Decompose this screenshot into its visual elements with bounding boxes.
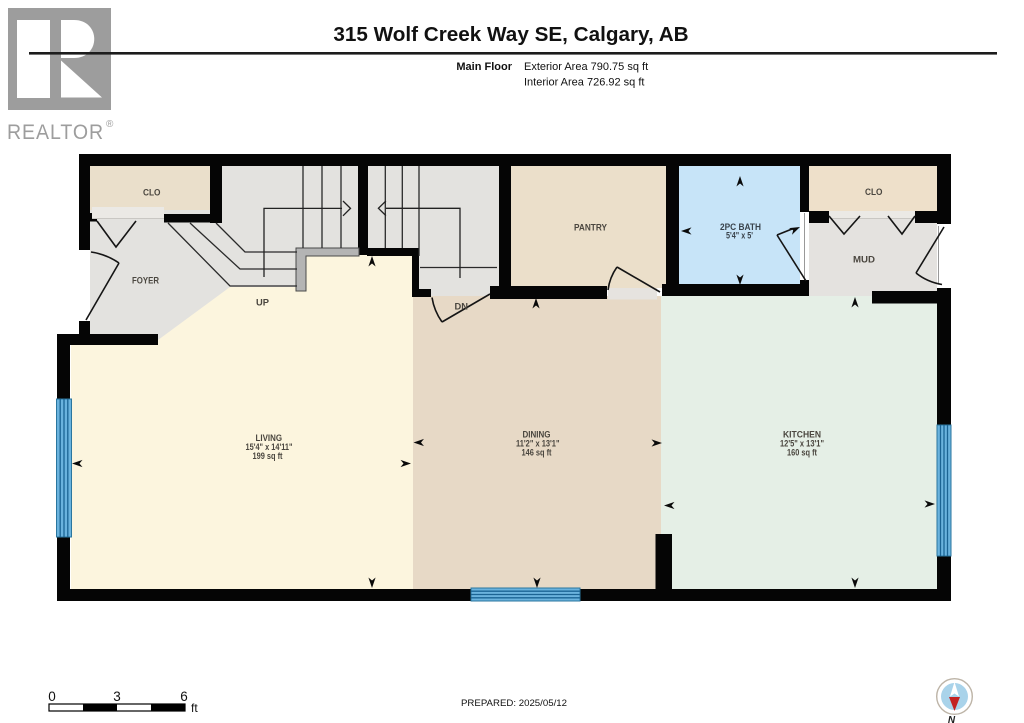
svg-text:5'4" x 5': 5'4" x 5' <box>726 231 753 241</box>
svg-text:146 sq ft: 146 sq ft <box>522 448 552 458</box>
svg-text:MUD: MUD <box>853 255 875 266</box>
svg-text:N: N <box>948 715 956 723</box>
svg-text:Main Floor: Main Floor <box>456 61 512 73</box>
svg-text:PANTRY: PANTRY <box>574 223 608 234</box>
svg-text:6: 6 <box>180 689 188 704</box>
svg-text:315 Wolf Creek Way SE, Calgary: 315 Wolf Creek Way SE, Calgary, AB <box>333 23 688 46</box>
svg-text:UP: UP <box>256 298 270 309</box>
svg-text:199 sq ft: 199 sq ft <box>253 451 283 461</box>
svg-text:Interior Area 726.92 sq ft: Interior Area 726.92 sq ft <box>524 77 644 89</box>
svg-text:160 sq ft: 160 sq ft <box>787 448 817 458</box>
svg-text:FOYER: FOYER <box>132 276 159 287</box>
svg-text:DN: DN <box>455 302 469 313</box>
svg-text:REALTOR: REALTOR <box>7 121 104 144</box>
svg-text:Exterior Area 790.75 sq ft: Exterior Area 790.75 sq ft <box>524 61 648 73</box>
svg-text:CLO: CLO <box>143 188 161 199</box>
svg-text:ft: ft <box>191 701 198 715</box>
svg-text:CLO: CLO <box>865 187 883 198</box>
svg-text:®: ® <box>106 119 114 130</box>
svg-text:PREPARED: 2025/05/12: PREPARED: 2025/05/12 <box>461 698 567 708</box>
svg-text:3: 3 <box>113 689 121 704</box>
svg-text:0: 0 <box>48 689 56 704</box>
